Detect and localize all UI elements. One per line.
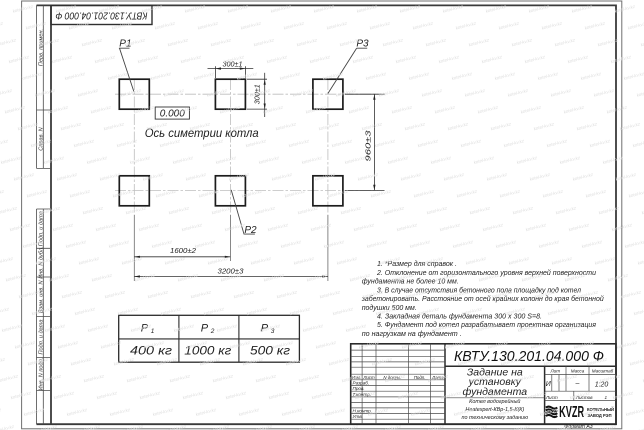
svg-text:Лист: Лист: [545, 395, 558, 400]
svg-text:Пров.: Пров.: [353, 386, 365, 391]
svg-text:Котел водогрейный: Котел водогрейный: [469, 398, 520, 405]
svg-text:Лит: Лит: [550, 369, 561, 374]
svg-text:Масштаб: Масштаб: [592, 369, 614, 374]
svg-text:по техническому заданию: по техническому заданию: [461, 415, 528, 421]
svg-text:1: 1: [605, 395, 608, 400]
svg-text:Лист: Лист: [362, 375, 375, 380]
svg-text:Разраб.: Разраб.: [353, 381, 370, 386]
svg-text:KVZR: KVZR: [559, 404, 584, 421]
svg-text:P2: P2: [244, 225, 257, 236]
svg-text:500 кг: 500 кг: [250, 346, 290, 358]
svg-text:960±3: 960±3: [364, 129, 373, 161]
svg-text:1600±2: 1600±2: [170, 246, 197, 255]
svg-text:–: –: [575, 380, 580, 387]
svg-text:Утв.: Утв.: [353, 414, 363, 419]
svg-text:Масса: Масса: [571, 369, 585, 374]
svg-text:по нагрузкам на фундамент .: по нагрузкам на фундамент .: [362, 329, 462, 338]
svg-text:забетонировать. Расстояние о: забетонировать. Расстояние от осей крайн…: [361, 294, 605, 303]
svg-text:Справ. N: Справ. N: [39, 126, 45, 150]
svg-text:Подп.: Подп.: [414, 375, 426, 380]
svg-text:Подп. и дата: Подп. и дата: [39, 319, 45, 354]
svg-text:Перв. примен.: Перв. примен.: [39, 29, 45, 66]
